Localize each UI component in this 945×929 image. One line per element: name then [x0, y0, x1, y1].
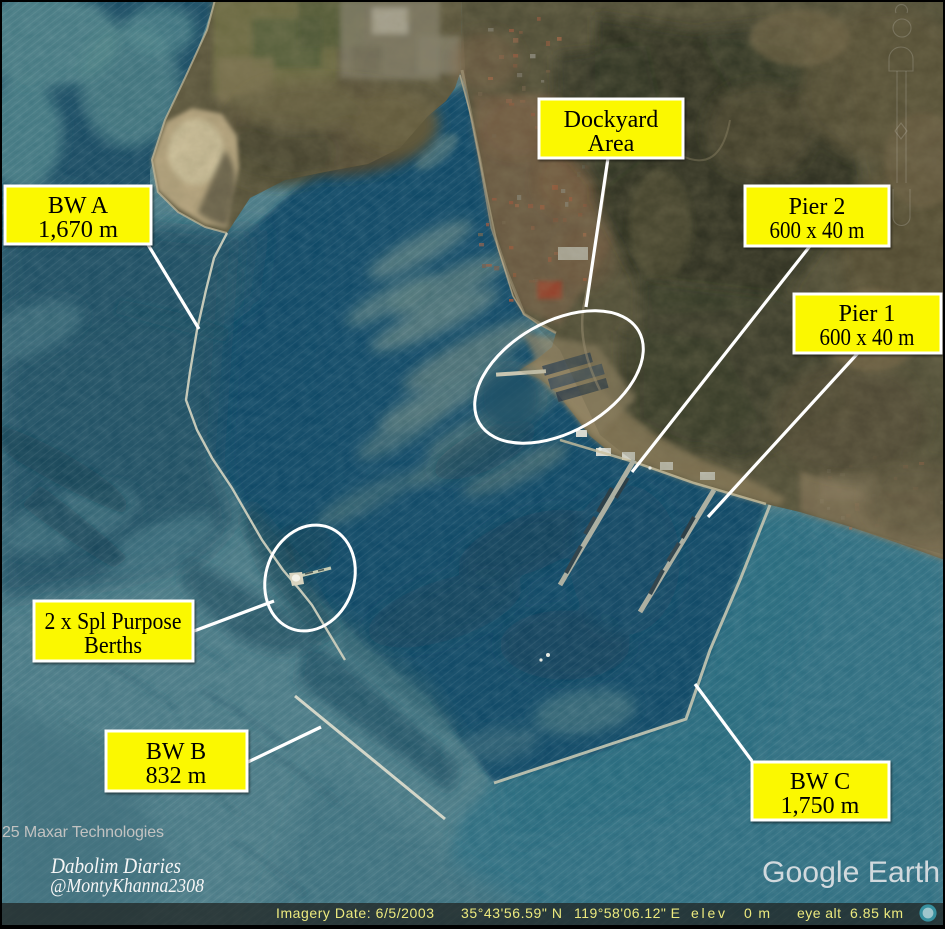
svg-text:Dockyard: Dockyard: [564, 107, 659, 133]
svg-text:BW C: BW C: [790, 769, 850, 795]
svg-text:Dabolim Diaries: Dabolim Diaries: [50, 853, 181, 878]
svg-text:1,670 m: 1,670 m: [38, 217, 118, 243]
svg-text:@MontyKhanna2308: @MontyKhanna2308: [50, 876, 204, 897]
svg-text:Area: Area: [588, 131, 635, 157]
svg-text:1,750 m: 1,750 m: [781, 793, 860, 819]
svg-text:600 x 40 m: 600 x 40 m: [820, 325, 915, 351]
svg-text:Pier 1: Pier 1: [839, 301, 896, 327]
svg-text:Google Earth: Google Earth: [762, 856, 940, 889]
svg-text:832 m: 832 m: [146, 763, 207, 789]
svg-text:Imagery Date: 6/5/2003: Imagery Date: 6/5/2003: [276, 905, 434, 921]
svg-text:2 x Spl Purpose: 2 x Spl Purpose: [45, 609, 182, 635]
svg-text:119°58'06.12" E: 119°58'06.12" E: [574, 905, 680, 921]
svg-text:25 Maxar Technologies: 25 Maxar Technologies: [2, 824, 164, 841]
svg-text:elev: elev: [691, 905, 725, 921]
svg-text:Berths: Berths: [84, 633, 142, 659]
svg-text:eye alt: eye alt: [797, 905, 841, 921]
svg-text:600 x 40 m: 600 x 40 m: [770, 218, 865, 244]
svg-text:BW A: BW A: [48, 193, 109, 219]
svg-text:35°43'56.59" N: 35°43'56.59" N: [461, 905, 562, 921]
svg-text:6.85 km: 6.85 km: [850, 905, 903, 921]
svg-text:0 m: 0 m: [744, 905, 770, 921]
svg-text:Pier 2: Pier 2: [789, 194, 846, 220]
svg-text:BW B: BW B: [146, 739, 206, 765]
